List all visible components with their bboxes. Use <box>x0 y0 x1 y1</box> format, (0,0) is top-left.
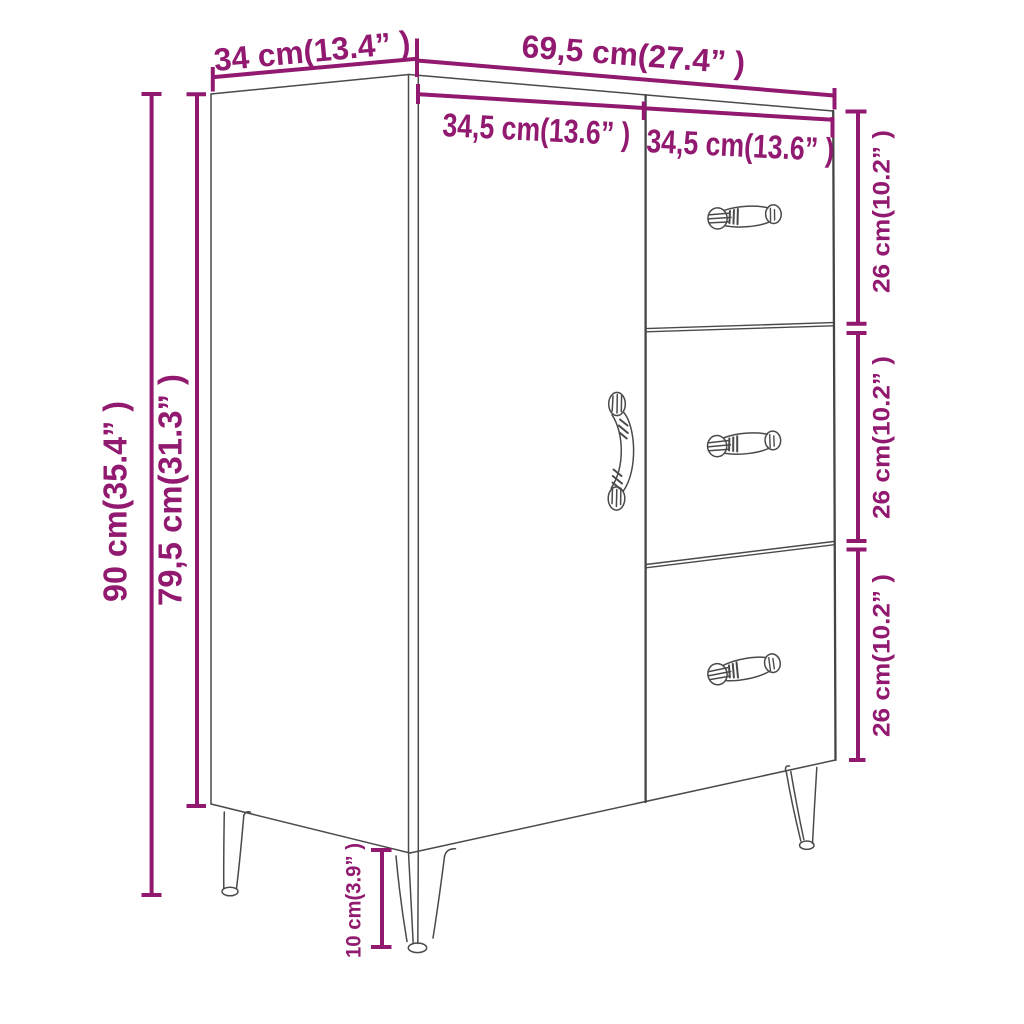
svg-text:26 cm(10.2” ): 26 cm(10.2” ) <box>869 356 896 519</box>
svg-text:26 cm(10.2” ): 26 cm(10.2” ) <box>869 574 896 737</box>
svg-text:79,5 cm(31.3” ): 79,5 cm(31.3” ) <box>152 374 189 606</box>
svg-text:26 cm(10.2” ): 26 cm(10.2” ) <box>869 130 896 293</box>
svg-text:10 cm(3.9” ): 10 cm(3.9” ) <box>342 843 366 958</box>
svg-text:90 cm(35.4” ): 90 cm(35.4” ) <box>97 401 134 602</box>
